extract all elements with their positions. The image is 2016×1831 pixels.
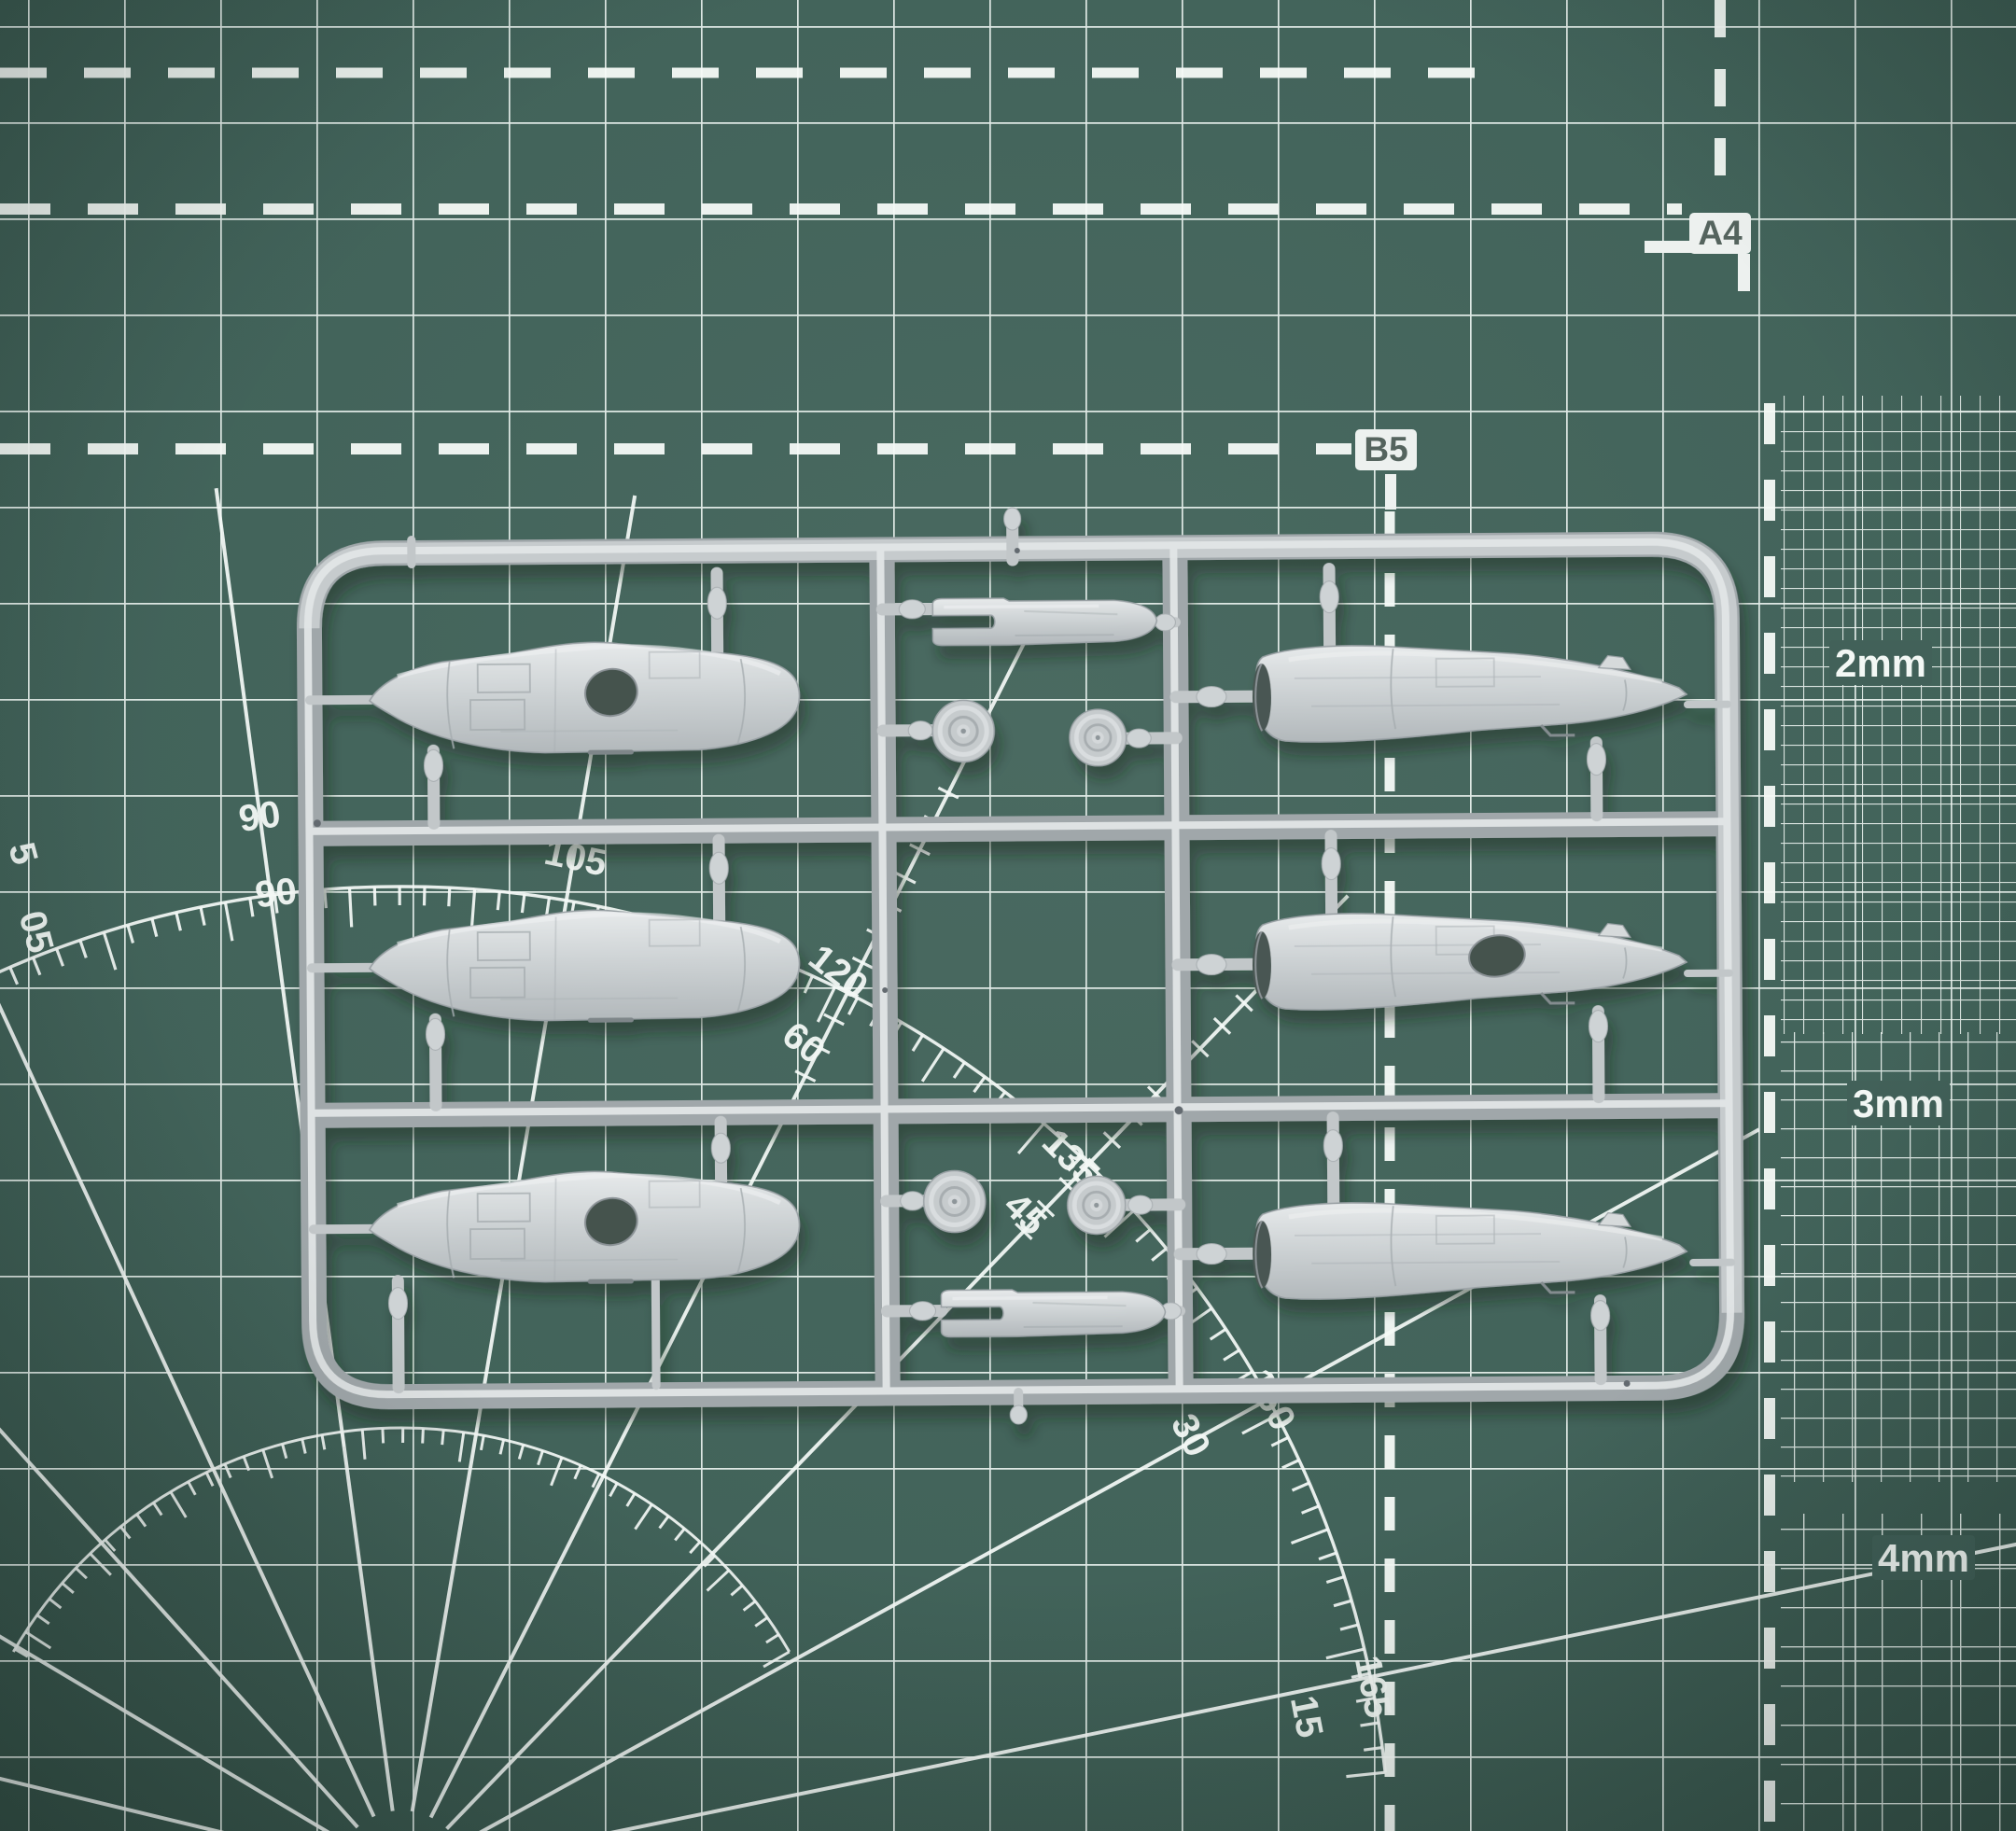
photo-model-kit-sprue-on-cutting-mat: 2mm 3mm 4mm A4 B5 90 105 120 [0,0,2016,1831]
scene-canvas: 2mm 3mm 4mm A4 B5 90 105 120 [0,0,2016,1831]
photo-vignette [0,0,2016,1831]
